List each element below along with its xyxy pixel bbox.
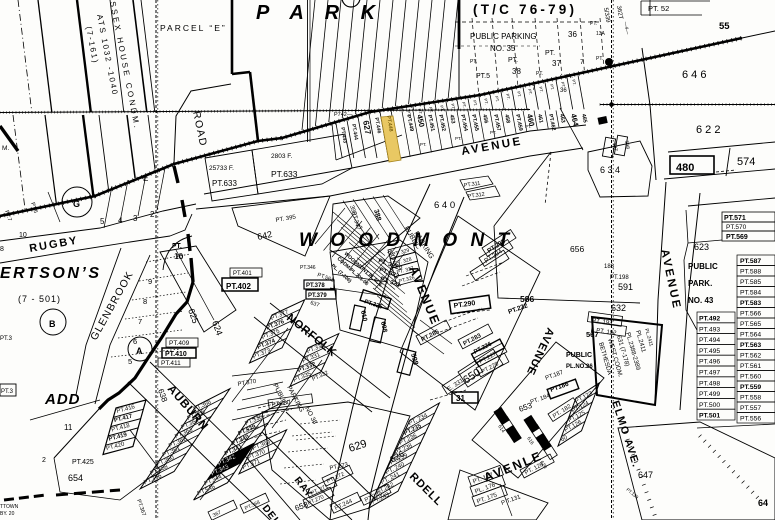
svg-text:PT.566: PT.566 <box>740 311 761 318</box>
svg-text:36: 36 <box>560 88 567 94</box>
svg-text:8: 8 <box>0 246 4 253</box>
svg-text:PT.198: PT.198 <box>610 275 629 281</box>
svg-text:PT.5: PT.5 <box>476 73 490 80</box>
svg-text:PT.: PT. <box>545 50 555 57</box>
svg-text:PARK.: PARK. <box>688 279 712 288</box>
svg-text:PL.NO.26: PL.NO.26 <box>566 364 593 370</box>
svg-text:PT.569: PT.569 <box>726 234 748 241</box>
svg-text:PT.588: PT.588 <box>740 269 761 276</box>
svg-text:PUBLIC: PUBLIC <box>688 262 718 271</box>
svg-text:36: 36 <box>568 30 577 39</box>
svg-text:PT.378: PT.378 <box>306 283 325 289</box>
svg-text:PT.585: PT.585 <box>740 279 761 286</box>
svg-text:25733 F.: 25733 F. <box>209 165 234 172</box>
svg-text:6 4 6: 6 4 6 <box>682 69 706 81</box>
svg-text:NO. 43: NO. 43 <box>688 296 714 305</box>
svg-text:NO. 35: NO. 35 <box>490 44 516 53</box>
svg-text:PT.561: PT.561 <box>740 363 761 370</box>
svg-text:6 4 0: 6 4 0 <box>434 200 455 211</box>
svg-text:8: 8 <box>143 297 147 306</box>
svg-text:2803 F.: 2803 F. <box>271 153 293 160</box>
svg-text:13A: 13A <box>596 31 606 37</box>
svg-text:PT.564: PT.564 <box>740 332 761 339</box>
svg-text:574: 574 <box>737 156 755 168</box>
svg-text:PT.562: PT.562 <box>740 353 761 360</box>
svg-text:PT.584: PT.584 <box>740 290 761 297</box>
svg-text:7: 7 <box>580 59 584 66</box>
svg-text:PT.583: PT.583 <box>740 300 761 307</box>
svg-text:37: 37 <box>552 59 561 68</box>
svg-text:586: 586 <box>520 294 534 304</box>
svg-text:480: 480 <box>676 162 694 174</box>
svg-text:G: G <box>73 199 80 209</box>
svg-text:PT.587: PT.587 <box>740 258 761 265</box>
svg-text:PT.379: PT.379 <box>308 293 327 299</box>
svg-text:656: 656 <box>570 244 584 254</box>
svg-text:PT.501: PT.501 <box>699 413 720 420</box>
svg-text:6: 6 <box>133 337 137 346</box>
svg-text:PT.633: PT.633 <box>271 169 298 179</box>
svg-text:PT.409: PT.409 <box>169 340 190 347</box>
svg-text:PT.: PT. <box>455 136 462 141</box>
svg-text:PT.495: PT.495 <box>699 348 720 355</box>
svg-text:PT.: PT. <box>536 71 543 77</box>
svg-text:PARCEL “E”: PARCEL “E” <box>160 23 227 33</box>
svg-text:6 2 2: 6 2 2 <box>696 124 720 136</box>
svg-text:PT.556: PT.556 <box>740 416 761 423</box>
svg-text:PT.: PT. <box>566 74 573 80</box>
svg-text:6 3 4: 6 3 4 <box>600 165 620 175</box>
svg-text:188: 188 <box>604 264 615 270</box>
svg-text:ERTSON’S: ERTSON’S <box>0 265 102 282</box>
svg-text:647: 647 <box>638 470 653 480</box>
svg-text:PT.498: PT.498 <box>699 380 720 387</box>
svg-text:PT.401: PT.401 <box>233 271 252 277</box>
svg-text:PT.346: PT.346 <box>300 265 316 271</box>
svg-text:PT.494: PT.494 <box>699 337 720 344</box>
svg-text:PT.493: PT.493 <box>699 326 720 333</box>
svg-text:11: 11 <box>64 423 73 432</box>
svg-text:PT.402: PT.402 <box>226 282 251 291</box>
svg-text:PT.: PT. <box>596 56 603 62</box>
svg-text:A: A <box>136 346 143 356</box>
svg-text:M.: M. <box>2 145 9 152</box>
svg-text:PT.425: PT.425 <box>72 459 94 466</box>
svg-text:PT.: PT. <box>470 59 477 65</box>
svg-text:(T/C 76-79): (T/C 76-79) <box>473 2 577 17</box>
svg-text:PT.: PT. <box>590 21 597 27</box>
svg-text:55: 55 <box>719 21 730 32</box>
svg-text:PT.410: PT.410 <box>165 351 187 358</box>
svg-text:623: 623 <box>694 242 709 252</box>
svg-text:31: 31 <box>456 394 465 403</box>
svg-text:PT.3: PT.3 <box>0 336 13 342</box>
svg-text:PT.: PT. <box>420 142 427 147</box>
svg-text:10: 10 <box>174 252 183 261</box>
svg-text:PUBLIC: PUBLIC <box>566 352 592 359</box>
svg-text:TTOWN: TTOWN <box>0 504 19 510</box>
svg-text:B: B <box>49 319 56 329</box>
svg-text:591: 591 <box>618 282 633 292</box>
svg-text:PT.565: PT.565 <box>740 321 761 328</box>
svg-text:ADD: ADD <box>44 391 81 408</box>
svg-text:PT.560: PT.560 <box>740 374 761 381</box>
svg-text:PT.633: PT.633 <box>212 179 237 188</box>
svg-text:9: 9 <box>148 277 152 286</box>
svg-text:PT.496: PT.496 <box>699 359 720 366</box>
svg-text:PT.500: PT.500 <box>699 402 720 409</box>
svg-text:38: 38 <box>512 67 521 76</box>
svg-text:PT.571: PT.571 <box>724 215 746 222</box>
svg-text:PT.492: PT.492 <box>699 316 720 323</box>
svg-text:654: 654 <box>68 473 83 483</box>
svg-text:PUBLIC PARKING: PUBLIC PARKING <box>470 32 537 41</box>
svg-text:P A R K: P A R K <box>256 2 383 24</box>
svg-text:5: 5 <box>128 357 132 366</box>
svg-text:PT.570: PT.570 <box>726 224 747 231</box>
svg-text:PT.3: PT.3 <box>1 389 14 395</box>
svg-text:PT.411: PT.411 <box>161 360 181 367</box>
svg-text:PT.558: PT.558 <box>740 395 761 402</box>
svg-text:632: 632 <box>611 303 626 313</box>
svg-text:PT.499: PT.499 <box>699 391 720 398</box>
svg-text:PT.563: PT.563 <box>740 342 761 349</box>
svg-text:7: 7 <box>138 317 142 326</box>
svg-text:P742—: P742— <box>334 112 353 118</box>
svg-text:5: 5 <box>100 217 105 226</box>
svg-text:PT.497: PT.497 <box>699 370 720 377</box>
svg-text:PT. 52: PT. 52 <box>648 4 669 13</box>
svg-text:BY. 20: BY. 20 <box>0 511 15 517</box>
svg-text:2: 2 <box>42 457 46 464</box>
svg-text:(7 - 501): (7 - 501) <box>18 294 61 304</box>
svg-text:PT.557: PT.557 <box>740 405 761 412</box>
svg-text:64: 64 <box>758 498 768 508</box>
svg-text:PT.559: PT.559 <box>740 384 761 391</box>
svg-text:PT.: PT. <box>508 57 518 64</box>
